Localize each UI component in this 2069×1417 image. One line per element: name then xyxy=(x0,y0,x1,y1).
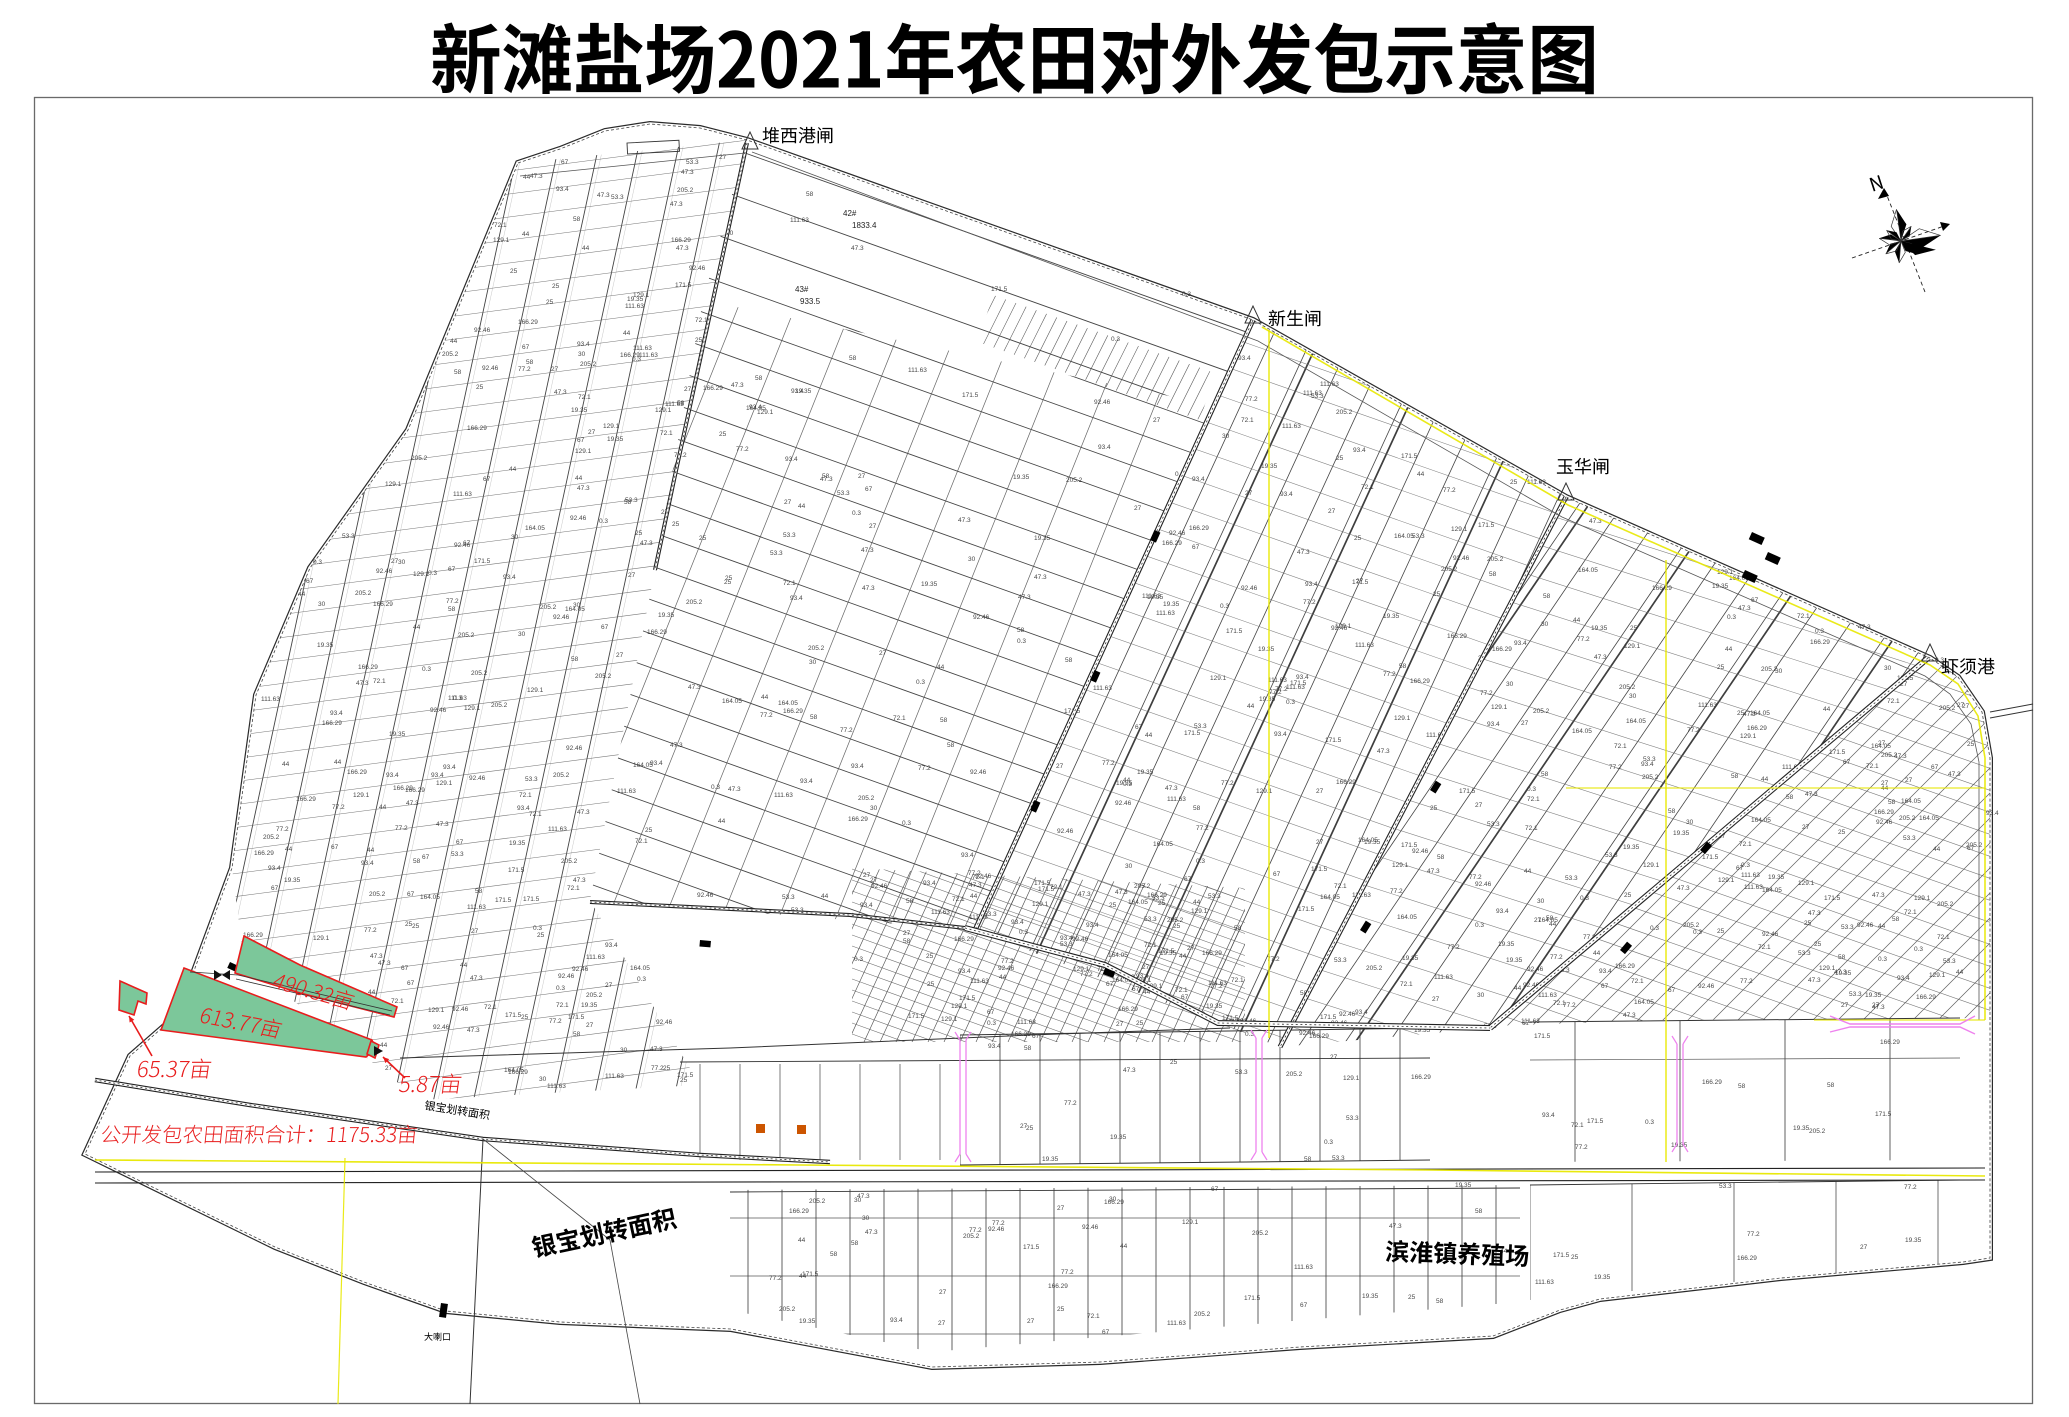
svg-text:77.2: 77.2 xyxy=(1609,764,1622,771)
svg-text:92.46: 92.46 xyxy=(1115,800,1132,807)
svg-text:171.5: 171.5 xyxy=(1534,1033,1551,1040)
svg-text:129.1: 129.1 xyxy=(1624,643,1641,650)
svg-text:19.35: 19.35 xyxy=(1137,769,1154,776)
svg-text:129.1: 129.1 xyxy=(1914,895,1931,902)
svg-text:58: 58 xyxy=(1024,1045,1032,1052)
svg-text:205.2: 205.2 xyxy=(369,891,386,898)
svg-text:205.2: 205.2 xyxy=(1487,556,1504,563)
svg-text:53.3: 53.3 xyxy=(1487,821,1500,828)
svg-text:25: 25 xyxy=(1136,1020,1144,1027)
svg-text:67: 67 xyxy=(407,980,415,987)
svg-text:44: 44 xyxy=(1823,706,1831,713)
svg-text:27: 27 xyxy=(588,429,596,436)
svg-text:166.29: 166.29 xyxy=(1916,994,1936,1001)
svg-text:19.35: 19.35 xyxy=(1362,1293,1379,1300)
svg-text:171.5: 171.5 xyxy=(1587,1118,1604,1125)
svg-text:93.4: 93.4 xyxy=(268,865,281,872)
svg-text:25: 25 xyxy=(1967,741,1975,748)
svg-text:72.1: 72.1 xyxy=(1758,944,1771,951)
svg-text:129.1: 129.1 xyxy=(353,792,370,799)
svg-text:67: 67 xyxy=(1601,983,1609,990)
svg-text:205.2: 205.2 xyxy=(580,361,597,368)
svg-text:53.3: 53.3 xyxy=(625,497,638,504)
svg-text:171.5: 171.5 xyxy=(991,286,1008,293)
svg-text:72.1: 72.1 xyxy=(635,838,648,845)
svg-text:92.46: 92.46 xyxy=(970,769,987,776)
svg-text:205.2: 205.2 xyxy=(809,1198,826,1205)
svg-text:72.1: 72.1 xyxy=(783,580,796,587)
svg-text:72.1: 72.1 xyxy=(1631,978,1644,985)
svg-text:58: 58 xyxy=(1838,954,1846,961)
svg-text:205.2: 205.2 xyxy=(1336,409,1353,416)
svg-text:0.3: 0.3 xyxy=(1914,946,1923,953)
svg-text:47.3: 47.3 xyxy=(1808,910,1821,917)
svg-text:72.1: 72.1 xyxy=(529,811,542,818)
svg-text:93.4: 93.4 xyxy=(503,574,516,581)
svg-text:25: 25 xyxy=(405,921,413,928)
svg-text:47.3: 47.3 xyxy=(573,877,586,884)
svg-text:53.3: 53.3 xyxy=(611,194,624,201)
svg-text:25: 25 xyxy=(1433,591,1441,598)
svg-text:58: 58 xyxy=(1541,771,1549,778)
svg-text:30: 30 xyxy=(1477,992,1485,999)
svg-text:205.2: 205.2 xyxy=(1939,705,1956,712)
svg-text:25: 25 xyxy=(1510,479,1518,486)
svg-text:58: 58 xyxy=(1234,925,1242,932)
svg-text:164.05: 164.05 xyxy=(1751,817,1771,824)
svg-text:93.4: 93.4 xyxy=(1296,674,1309,681)
svg-text:67: 67 xyxy=(865,486,873,493)
svg-text:0.3: 0.3 xyxy=(1475,922,1484,929)
svg-text:44: 44 xyxy=(1179,953,1187,960)
svg-text:47.3: 47.3 xyxy=(1165,785,1178,792)
svg-text:19.35: 19.35 xyxy=(1673,830,1690,837)
svg-text:25: 25 xyxy=(672,521,680,528)
svg-text:44: 44 xyxy=(999,974,1007,981)
svg-text:0.3: 0.3 xyxy=(1693,929,1702,936)
svg-text:72.1: 72.1 xyxy=(373,678,386,685)
svg-text:93.4: 93.4 xyxy=(556,186,569,193)
svg-text:93.4: 93.4 xyxy=(1060,935,1073,942)
svg-text:129.1: 129.1 xyxy=(1643,862,1660,869)
svg-text:47.3: 47.3 xyxy=(1623,1012,1636,1019)
svg-text:44: 44 xyxy=(1145,732,1153,739)
svg-text:111.63: 111.63 xyxy=(548,826,567,833)
svg-text:92.46: 92.46 xyxy=(1475,881,1492,888)
svg-text:25: 25 xyxy=(552,283,560,290)
svg-text:93.4: 93.4 xyxy=(1355,1009,1368,1016)
svg-text:67: 67 xyxy=(577,437,585,444)
svg-text:44: 44 xyxy=(1573,617,1581,624)
svg-text:205.2: 205.2 xyxy=(1066,477,1083,484)
svg-text:166.29: 166.29 xyxy=(1118,1006,1138,1013)
svg-text:92.46: 92.46 xyxy=(558,973,575,980)
svg-text:205.2: 205.2 xyxy=(808,645,825,652)
svg-text:129.1: 129.1 xyxy=(1256,788,1273,795)
svg-text:72.1: 72.1 xyxy=(1231,977,1244,984)
svg-text:27: 27 xyxy=(1057,1205,1065,1212)
svg-text:166.29: 166.29 xyxy=(1048,1283,1068,1290)
svg-text:171.5: 171.5 xyxy=(1478,522,1495,529)
svg-text:72.1: 72.1 xyxy=(1797,613,1810,620)
svg-text:25: 25 xyxy=(546,299,554,306)
svg-text:77.2: 77.2 xyxy=(1221,780,1234,787)
svg-text:166.29: 166.29 xyxy=(393,785,413,792)
svg-text:77.2: 77.2 xyxy=(1747,1231,1760,1238)
svg-text:77.2: 77.2 xyxy=(1904,1184,1917,1191)
svg-text:44: 44 xyxy=(450,338,458,345)
svg-text:0.3: 0.3 xyxy=(428,570,437,577)
svg-text:93.4: 93.4 xyxy=(605,942,618,949)
svg-text:205.2: 205.2 xyxy=(963,1233,980,1240)
svg-text:171.5: 171.5 xyxy=(1298,906,1315,913)
svg-text:47.3: 47.3 xyxy=(1594,654,1607,661)
svg-text:19.35: 19.35 xyxy=(509,840,526,847)
svg-text:25: 25 xyxy=(1336,455,1344,462)
svg-text:171.5: 171.5 xyxy=(1824,895,1841,902)
svg-text:19.35: 19.35 xyxy=(1623,844,1640,851)
svg-text:44: 44 xyxy=(798,503,806,510)
svg-text:77.2: 77.2 xyxy=(969,1227,982,1234)
svg-text:164.05: 164.05 xyxy=(525,525,545,532)
svg-text:44: 44 xyxy=(582,245,590,252)
svg-text:77.2: 77.2 xyxy=(1480,690,1493,697)
svg-text:0.3: 0.3 xyxy=(916,679,925,686)
svg-text:166.29: 166.29 xyxy=(1147,892,1167,899)
svg-text:47.3: 47.3 xyxy=(1743,711,1756,718)
svg-text:58: 58 xyxy=(806,191,814,198)
svg-text:171.5: 171.5 xyxy=(1226,628,1243,635)
svg-text:171.5: 171.5 xyxy=(505,1012,522,1019)
svg-text:164.05: 164.05 xyxy=(722,698,742,705)
svg-text:19.35: 19.35 xyxy=(1498,941,1515,948)
svg-text:53.3: 53.3 xyxy=(1565,875,1578,882)
svg-text:205.2: 205.2 xyxy=(1619,684,1636,691)
svg-text:92.46: 92.46 xyxy=(1331,625,1348,632)
svg-text:72.1: 72.1 xyxy=(1144,942,1157,949)
svg-text:171.5: 171.5 xyxy=(495,897,512,904)
svg-text:53.3: 53.3 xyxy=(1334,957,1347,964)
svg-text:166.29: 166.29 xyxy=(647,629,667,636)
svg-text:933.5: 933.5 xyxy=(800,297,821,306)
svg-text:44: 44 xyxy=(379,804,387,811)
svg-text:129.1: 129.1 xyxy=(1191,908,1208,915)
svg-text:30: 30 xyxy=(620,1047,628,1054)
svg-text:0.3: 0.3 xyxy=(1324,1139,1333,1146)
svg-text:129.1: 129.1 xyxy=(655,407,672,414)
svg-text:77.2: 77.2 xyxy=(1102,760,1115,767)
svg-text:77.2: 77.2 xyxy=(1550,954,1563,961)
svg-text:205.2: 205.2 xyxy=(561,858,578,865)
svg-text:53.3: 53.3 xyxy=(837,490,850,497)
svg-text:47.3: 47.3 xyxy=(1677,885,1690,892)
svg-text:92.46: 92.46 xyxy=(1339,1011,1356,1018)
svg-text:47.3: 47.3 xyxy=(1078,891,1091,898)
svg-text:77.2: 77.2 xyxy=(1245,396,1258,403)
svg-text:25: 25 xyxy=(926,953,934,960)
svg-text:58: 58 xyxy=(1399,663,1407,670)
svg-text:25: 25 xyxy=(537,932,545,939)
svg-text:47.3: 47.3 xyxy=(670,201,683,208)
svg-text:164.05: 164.05 xyxy=(630,965,650,972)
svg-text:77.2: 77.2 xyxy=(1275,686,1288,693)
svg-text:166.29: 166.29 xyxy=(1615,963,1635,970)
svg-text:27: 27 xyxy=(939,1289,947,1296)
svg-text:171.5: 171.5 xyxy=(908,1013,925,1020)
svg-text:25: 25 xyxy=(1109,902,1117,909)
svg-text:0.3: 0.3 xyxy=(599,518,608,525)
svg-text:166.29: 166.29 xyxy=(358,664,378,671)
svg-text:44: 44 xyxy=(367,847,375,854)
svg-text:30: 30 xyxy=(862,1215,870,1222)
svg-text:0.3: 0.3 xyxy=(1645,1119,1654,1126)
svg-text:129.1: 129.1 xyxy=(1210,675,1227,682)
svg-text:77.2: 77.2 xyxy=(760,712,773,719)
svg-text:166.29: 166.29 xyxy=(1411,1074,1431,1081)
svg-text:93.4: 93.4 xyxy=(1353,447,1366,454)
svg-text:205.2: 205.2 xyxy=(411,455,428,462)
svg-text:111.63: 111.63 xyxy=(1167,1320,1186,1327)
svg-text:77.2: 77.2 xyxy=(769,1275,782,1282)
svg-text:77.2: 77.2 xyxy=(1443,487,1456,494)
svg-text:25: 25 xyxy=(695,337,703,344)
svg-text:53.3: 53.3 xyxy=(1849,991,1862,998)
svg-text:93.4: 93.4 xyxy=(785,456,798,463)
svg-text:47.3: 47.3 xyxy=(640,540,653,547)
svg-text:93.4: 93.4 xyxy=(1599,968,1612,975)
svg-text:166.29: 166.29 xyxy=(1810,639,1830,646)
svg-text:30: 30 xyxy=(511,534,519,541)
svg-text:44: 44 xyxy=(282,761,290,768)
svg-text:58: 58 xyxy=(475,888,483,895)
svg-text:0.3: 0.3 xyxy=(1741,862,1750,869)
svg-text:58: 58 xyxy=(1193,805,1201,812)
svg-text:77.2: 77.2 xyxy=(1064,1100,1077,1107)
svg-text:19.35: 19.35 xyxy=(1160,950,1177,957)
svg-text:92.46: 92.46 xyxy=(1057,828,1074,835)
svg-text:67: 67 xyxy=(601,624,609,631)
svg-text:77.2: 77.2 xyxy=(518,366,531,373)
svg-text:171.5: 171.5 xyxy=(1553,1252,1570,1259)
svg-text:47.3: 47.3 xyxy=(470,975,483,982)
svg-text:0.3: 0.3 xyxy=(902,820,911,827)
svg-text:93.4: 93.4 xyxy=(361,860,374,867)
svg-text:53.3: 53.3 xyxy=(1719,1183,1732,1190)
svg-text:111.63: 111.63 xyxy=(639,352,658,359)
svg-text:205.2: 205.2 xyxy=(1899,815,1916,822)
svg-text:111.63: 111.63 xyxy=(547,1083,566,1090)
svg-text:27: 27 xyxy=(1475,802,1483,809)
svg-text:93.4: 93.4 xyxy=(517,805,530,812)
svg-text:0.3: 0.3 xyxy=(854,956,863,963)
svg-text:171.5: 171.5 xyxy=(675,282,692,289)
svg-text:44: 44 xyxy=(761,694,769,701)
svg-text:67: 67 xyxy=(1211,1186,1219,1193)
svg-text:93.4: 93.4 xyxy=(1641,761,1654,768)
svg-text:19.35: 19.35 xyxy=(1793,1125,1810,1132)
svg-text:27: 27 xyxy=(628,572,636,579)
svg-text:47.3: 47.3 xyxy=(861,547,874,554)
svg-text:67: 67 xyxy=(1032,1033,1040,1040)
svg-text:0.3: 0.3 xyxy=(1245,1031,1254,1038)
svg-text:205.2: 205.2 xyxy=(1441,566,1458,573)
svg-text:47.3: 47.3 xyxy=(731,382,744,389)
svg-text:129.1: 129.1 xyxy=(1929,972,1946,979)
svg-text:93.4: 93.4 xyxy=(431,772,444,779)
svg-text:77.2: 77.2 xyxy=(1001,958,1014,965)
svg-text:129.1: 129.1 xyxy=(951,1003,968,1010)
svg-text:77.2: 77.2 xyxy=(1303,599,1316,606)
svg-text:47.3: 47.3 xyxy=(1427,868,1440,875)
svg-text:19.35: 19.35 xyxy=(1383,613,1400,620)
svg-text:205.2: 205.2 xyxy=(1366,965,1383,972)
svg-text:44: 44 xyxy=(298,591,306,598)
svg-text:47.3: 47.3 xyxy=(1377,748,1390,755)
svg-text:19.35: 19.35 xyxy=(1591,625,1608,632)
svg-text:0.3: 0.3 xyxy=(1196,858,1205,865)
svg-text:19.35: 19.35 xyxy=(1206,1003,1223,1010)
svg-text:129.1: 129.1 xyxy=(1343,1075,1360,1082)
svg-text:58: 58 xyxy=(1543,593,1551,600)
svg-text:25: 25 xyxy=(1354,535,1362,542)
svg-text:42#: 42# xyxy=(843,209,857,218)
svg-text:27: 27 xyxy=(471,928,479,935)
svg-text:205.2: 205.2 xyxy=(779,1306,796,1313)
svg-text:67: 67 xyxy=(1668,987,1676,994)
svg-text:93.4: 93.4 xyxy=(961,852,974,859)
svg-text:93.4: 93.4 xyxy=(577,341,590,348)
svg-text:30: 30 xyxy=(1537,898,1545,905)
svg-text:171.5: 171.5 xyxy=(1244,1295,1261,1302)
svg-text:77.2: 77.2 xyxy=(1210,983,1223,990)
svg-text:129.1: 129.1 xyxy=(1798,880,1815,887)
svg-text:53.3: 53.3 xyxy=(1346,1115,1359,1122)
svg-text:44: 44 xyxy=(718,818,726,825)
svg-text:58: 58 xyxy=(1017,627,1025,634)
svg-text:53.3: 53.3 xyxy=(342,533,355,540)
svg-text:47.3: 47.3 xyxy=(597,192,610,199)
svg-text:47.3: 47.3 xyxy=(670,742,683,749)
svg-text:27: 27 xyxy=(1116,1021,1124,1028)
svg-text:129.1: 129.1 xyxy=(575,448,592,455)
svg-text:164.05: 164.05 xyxy=(1901,798,1921,805)
svg-text:67: 67 xyxy=(1184,876,1192,883)
svg-text:129.1: 129.1 xyxy=(633,292,650,299)
svg-text:47.3: 47.3 xyxy=(969,882,982,889)
svg-text:19.35: 19.35 xyxy=(1768,874,1785,881)
svg-text:129.1: 129.1 xyxy=(493,237,510,244)
svg-text:0.3: 0.3 xyxy=(1527,786,1536,793)
svg-text:47.3: 47.3 xyxy=(676,245,689,252)
svg-text:93.4: 93.4 xyxy=(330,710,343,717)
svg-text:92.46: 92.46 xyxy=(1094,399,1111,406)
svg-text:92.46: 92.46 xyxy=(452,1006,469,1013)
svg-text:164.05: 164.05 xyxy=(1871,743,1891,750)
svg-text:205.2: 205.2 xyxy=(1194,1311,1211,1318)
svg-text:53.3: 53.3 xyxy=(1235,1069,1248,1076)
svg-text:0.3: 0.3 xyxy=(1111,336,1120,343)
svg-text:58: 58 xyxy=(571,656,579,663)
svg-text:164.05: 164.05 xyxy=(1634,999,1654,1006)
svg-text:0.3: 0.3 xyxy=(1878,956,1887,963)
svg-text:77.2: 77.2 xyxy=(364,927,377,934)
svg-text:30: 30 xyxy=(870,805,878,812)
svg-text:205.2: 205.2 xyxy=(1937,901,1954,908)
svg-text:0.3: 0.3 xyxy=(1220,603,1229,610)
svg-text:72.1: 72.1 xyxy=(1614,743,1627,750)
svg-text:27: 27 xyxy=(1153,417,1161,424)
svg-text:72.1: 72.1 xyxy=(1361,484,1374,491)
svg-text:25: 25 xyxy=(1571,1254,1579,1261)
svg-text:67: 67 xyxy=(456,839,464,846)
svg-text:47.3: 47.3 xyxy=(1297,549,1310,556)
svg-text:30: 30 xyxy=(1884,665,1892,672)
svg-text:111.63: 111.63 xyxy=(1698,702,1717,709)
svg-text:0.3: 0.3 xyxy=(313,559,322,566)
svg-text:205.2: 205.2 xyxy=(1252,1230,1269,1237)
svg-text:93.4: 93.4 xyxy=(790,595,803,602)
svg-text:92.46: 92.46 xyxy=(1857,922,1874,929)
svg-text:205.2: 205.2 xyxy=(1761,666,1778,673)
svg-text:58: 58 xyxy=(947,742,955,749)
svg-text:171.5: 171.5 xyxy=(474,558,491,565)
svg-text:111.63: 111.63 xyxy=(1535,1279,1554,1286)
svg-text:166.29: 166.29 xyxy=(1702,1079,1722,1086)
svg-text:77.2: 77.2 xyxy=(968,870,981,877)
svg-text:67: 67 xyxy=(561,159,569,166)
svg-text:44: 44 xyxy=(1725,646,1733,653)
svg-text:0.3: 0.3 xyxy=(1580,895,1589,902)
svg-text:27: 27 xyxy=(1872,1002,1880,1009)
svg-text:53.3: 53.3 xyxy=(1605,852,1618,859)
svg-text:92.46: 92.46 xyxy=(572,966,589,973)
svg-text:58: 58 xyxy=(1436,1298,1444,1305)
svg-text:171.5: 171.5 xyxy=(1034,880,1051,887)
svg-text:166.29: 166.29 xyxy=(1189,525,1209,532)
svg-text:77.2: 77.2 xyxy=(1740,978,1753,985)
svg-text:92.46: 92.46 xyxy=(482,365,499,372)
svg-text:44: 44 xyxy=(1761,776,1769,783)
svg-text:67: 67 xyxy=(1192,544,1200,551)
svg-text:72.1: 72.1 xyxy=(567,885,580,892)
svg-text:164.05: 164.05 xyxy=(1320,894,1340,901)
svg-text:166.29: 166.29 xyxy=(671,237,691,244)
svg-text:25: 25 xyxy=(1057,1306,1065,1313)
svg-text:27: 27 xyxy=(1187,945,1195,952)
svg-text:93.4: 93.4 xyxy=(386,772,399,779)
svg-text:19.35: 19.35 xyxy=(799,1318,816,1325)
svg-text:27: 27 xyxy=(858,473,866,480)
svg-text:92.46: 92.46 xyxy=(697,892,714,899)
svg-text:129.1: 129.1 xyxy=(527,687,544,694)
svg-text:44: 44 xyxy=(798,1237,806,1244)
svg-text:47.3: 47.3 xyxy=(577,809,590,816)
svg-text:92.46: 92.46 xyxy=(376,568,393,575)
svg-text:111.63: 111.63 xyxy=(633,345,652,352)
svg-text:72.1: 72.1 xyxy=(1866,763,1879,770)
svg-text:164.05: 164.05 xyxy=(1626,718,1646,725)
svg-text:19.35: 19.35 xyxy=(1258,646,1275,653)
svg-text:164.05: 164.05 xyxy=(565,606,585,613)
svg-text:58: 58 xyxy=(1738,1083,1746,1090)
svg-text:58: 58 xyxy=(448,606,456,613)
svg-text:171.5: 171.5 xyxy=(1702,854,1719,861)
svg-text:0.3: 0.3 xyxy=(711,784,720,791)
svg-text:19.35: 19.35 xyxy=(317,642,334,649)
svg-text:53.3: 53.3 xyxy=(525,776,538,783)
svg-text:47.3: 47.3 xyxy=(1858,624,1871,631)
svg-text:47.3: 47.3 xyxy=(865,1229,878,1236)
